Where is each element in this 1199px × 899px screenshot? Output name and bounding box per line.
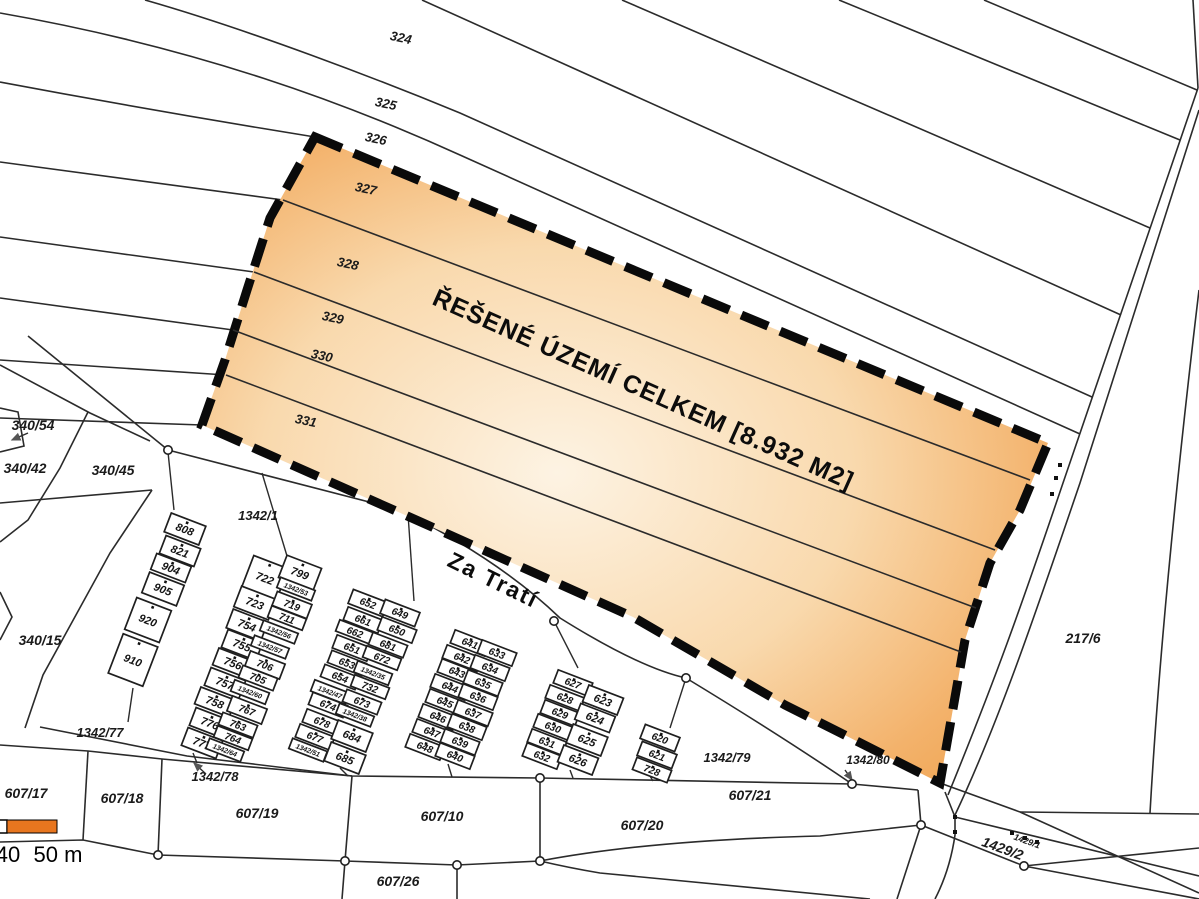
survey-node-icon — [917, 821, 925, 829]
parcel-number-label: 607/10 — [421, 808, 464, 824]
strip-parcel-number: 325 — [374, 94, 399, 113]
parcel-cell: 910 — [108, 634, 158, 686]
survey-point-icon — [1054, 476, 1058, 480]
parcel-number-label: 1342/77 — [77, 725, 125, 740]
parcel-number-label: 607/26 — [377, 873, 420, 889]
survey-node-icon — [1020, 862, 1028, 870]
survey-node-icon — [536, 857, 544, 865]
parcel-number-label: 607/19 — [236, 805, 279, 821]
parcel-number-label: 1342/78 — [192, 769, 240, 784]
survey-point-icon — [1010, 831, 1014, 835]
survey-point-icon — [1035, 840, 1039, 844]
parcel-cell: 920 — [125, 597, 172, 642]
parcel-number-label: 607/18 — [101, 790, 144, 806]
cadastral-map: 8088219049059209107227237547557567577587… — [0, 0, 1199, 899]
map-canvas: 8088219049059209107227237547557567577587… — [0, 0, 1199, 899]
survey-point-icon — [1058, 463, 1062, 467]
survey-node-icon — [341, 857, 349, 865]
survey-node-icon — [848, 780, 856, 788]
strip-parcel-number: 324 — [389, 28, 414, 47]
parcel-number-label: 340/54 — [12, 417, 55, 433]
parcel-number-label: 340/42 — [4, 460, 47, 476]
scale-label-50m: 50 m — [34, 842, 83, 867]
survey-node-icon — [154, 851, 162, 859]
parcel-number-label: 607/20 — [621, 817, 664, 833]
parcel-number-label: 607/21 — [729, 787, 772, 803]
strip-parcel-number: 326 — [364, 129, 389, 148]
parcel-number-label: 340/45 — [92, 462, 135, 478]
parcel-number-label: 217/6 — [1064, 630, 1100, 646]
survey-point-icon — [1050, 492, 1054, 496]
survey-point-icon — [1023, 836, 1027, 840]
scale-bar-white-segment — [0, 820, 7, 833]
parcel-number-label: 1342/1 — [238, 508, 278, 523]
scale-bar: 40 50 m — [0, 820, 82, 867]
parcel-number-label: 607/17 — [5, 785, 49, 801]
survey-point-icon — [953, 830, 957, 834]
survey-point-icon — [953, 815, 957, 819]
survey-node-icon — [536, 774, 544, 782]
survey-node-icon — [550, 617, 558, 625]
survey-node-icon — [164, 446, 172, 454]
survey-node-icon — [453, 861, 461, 869]
parcel-number-label: 1342/79 — [704, 750, 752, 765]
southeast-road-lines — [897, 783, 1199, 899]
scale-label-40: 40 — [0, 842, 20, 867]
survey-node-icon — [682, 674, 690, 682]
parcel-number-label: 1342/80 — [846, 753, 890, 767]
scale-bar-orange-segment — [7, 820, 57, 833]
parcel-number-label: 340/15 — [19, 632, 62, 648]
